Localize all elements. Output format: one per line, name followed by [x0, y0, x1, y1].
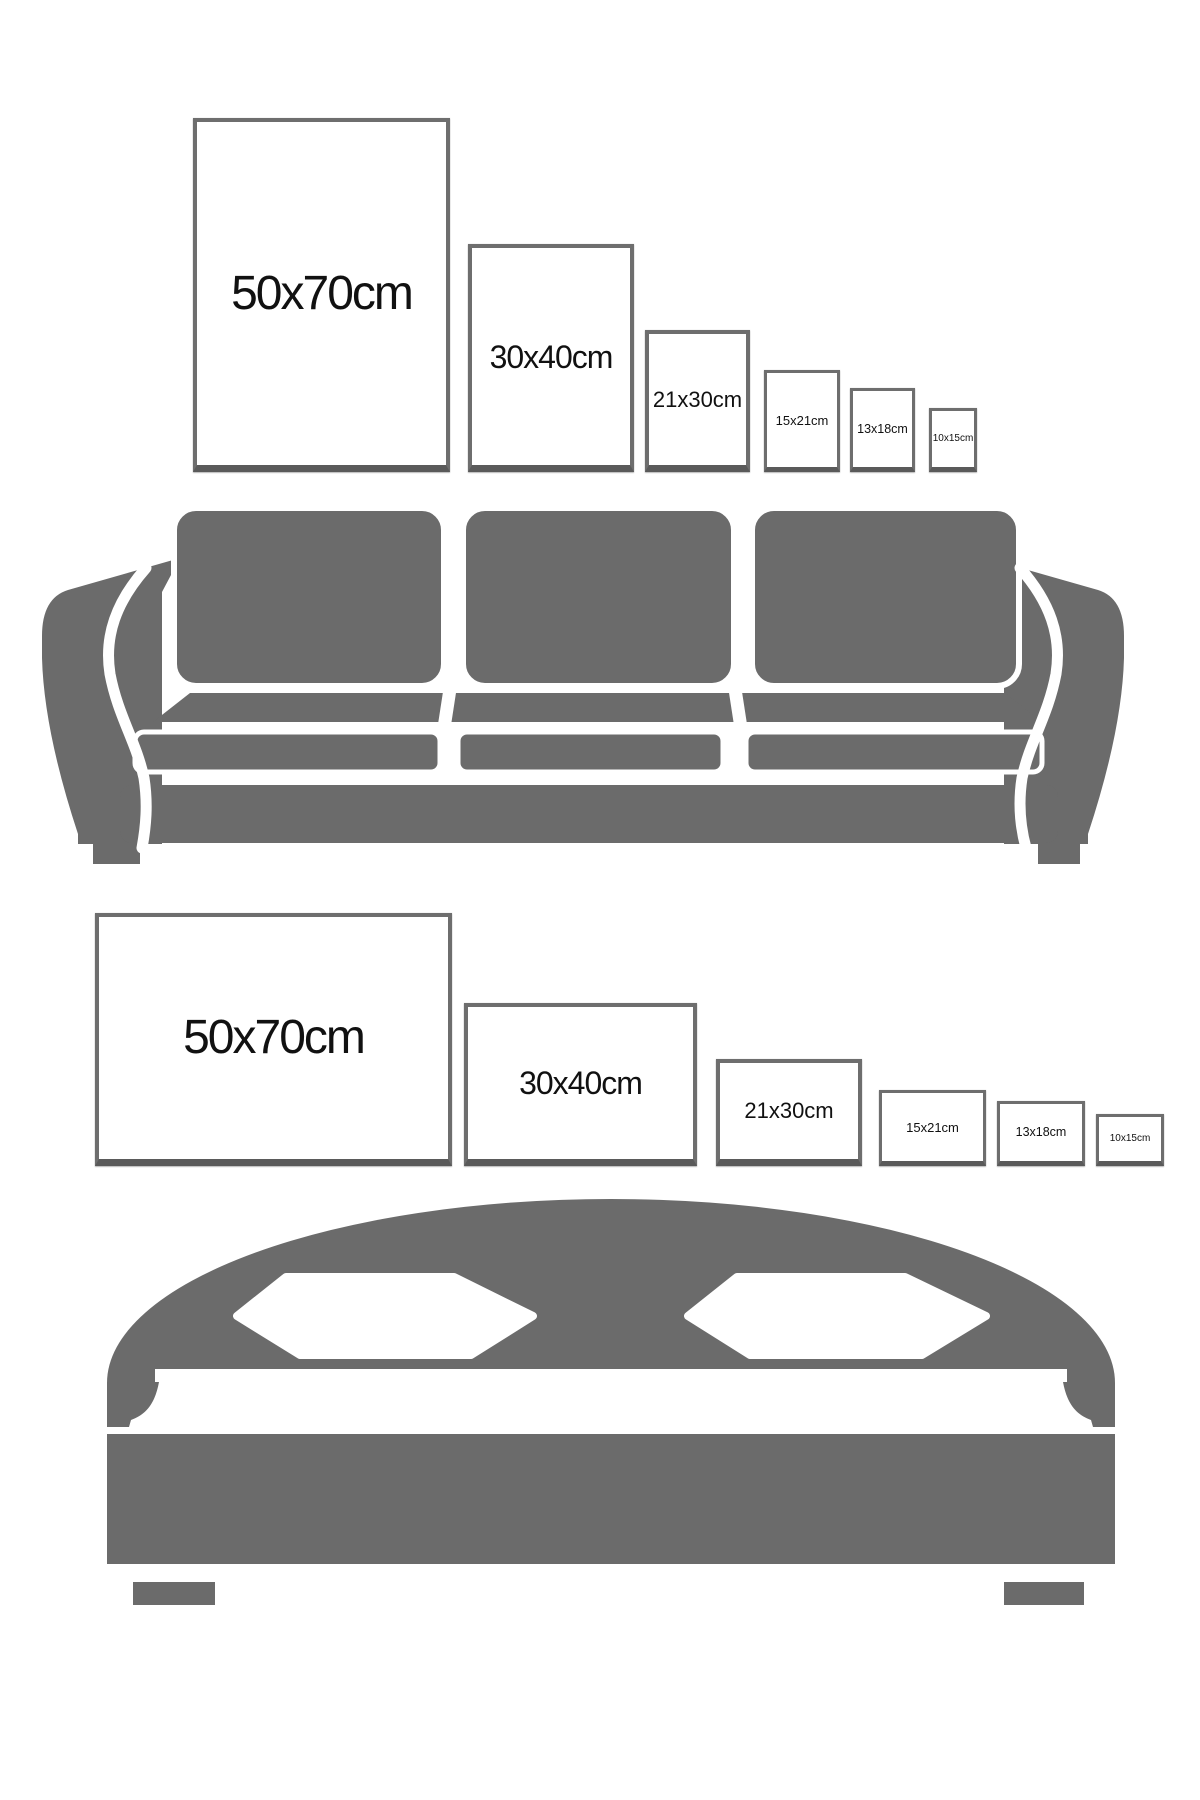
bed	[107, 1199, 1115, 1605]
bed-headboard-gap	[155, 1369, 1067, 1382]
frame-size-label: 21x30cm	[744, 1100, 833, 1122]
bed-base	[107, 1434, 1115, 1564]
frame-50x70-landscape: 50x70cm	[95, 913, 452, 1166]
frame-21x30-landscape: 21x30cm	[716, 1059, 862, 1166]
frame-size-label: 30x40cm	[519, 1067, 642, 1099]
bed-illustration	[107, 1193, 1118, 1605]
bed-size-chart: 50x70cm 30x40cm 21x30cm 15x21cm 13x18cm …	[0, 0, 1200, 1800]
bed-mattress	[127, 1382, 1095, 1434]
frame-size-label: 10x15cm	[1110, 1134, 1151, 1144]
frame-size-label: 15x21cm	[906, 1121, 959, 1134]
poster-size-guide: 50x70cm 30x40cm 21x30cm 15x21cm 13x18cm …	[0, 0, 1200, 1800]
bed-leg-left	[133, 1582, 215, 1605]
frame-10x15-landscape: 10x15cm	[1096, 1114, 1164, 1166]
frame-size-label: 13x18cm	[1016, 1126, 1067, 1139]
bed-leg-right	[1004, 1582, 1084, 1605]
frame-30x40-landscape: 30x40cm	[464, 1003, 697, 1166]
frame-13x18-landscape: 13x18cm	[997, 1101, 1085, 1166]
frame-size-label: 50x70cm	[183, 1014, 364, 1062]
frame-15x21-landscape: 15x21cm	[879, 1090, 986, 1166]
